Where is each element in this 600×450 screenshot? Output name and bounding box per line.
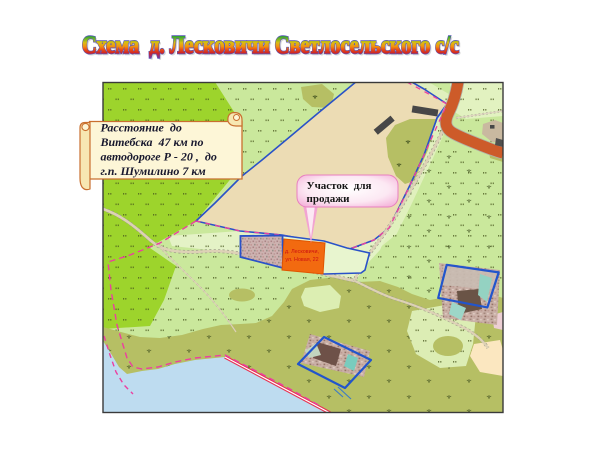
svg-text:Витебска 47 км по: Витебска 47 км по xyxy=(100,135,204,149)
svg-text:д. Лесковичи,: д. Лесковичи, xyxy=(285,249,319,255)
svg-text:Схема д. Лесковичи Светлосель: Схема д. Лесковичи Светлосельского с/с xyxy=(82,32,459,59)
svg-text:г.п. Шумилино 7 км: г.п. Шумилино 7 км xyxy=(101,164,206,178)
svg-text:Участок для: Участок для xyxy=(307,180,372,192)
svg-text:Расстояние до: Расстояние до xyxy=(101,121,182,135)
svg-text:продажи: продажи xyxy=(307,193,351,205)
svg-text:автодороге Р - 20 , до: автодороге Р - 20 , до xyxy=(101,150,217,164)
svg-text:ул. Новая, 22: ул. Новая, 22 xyxy=(285,257,318,263)
